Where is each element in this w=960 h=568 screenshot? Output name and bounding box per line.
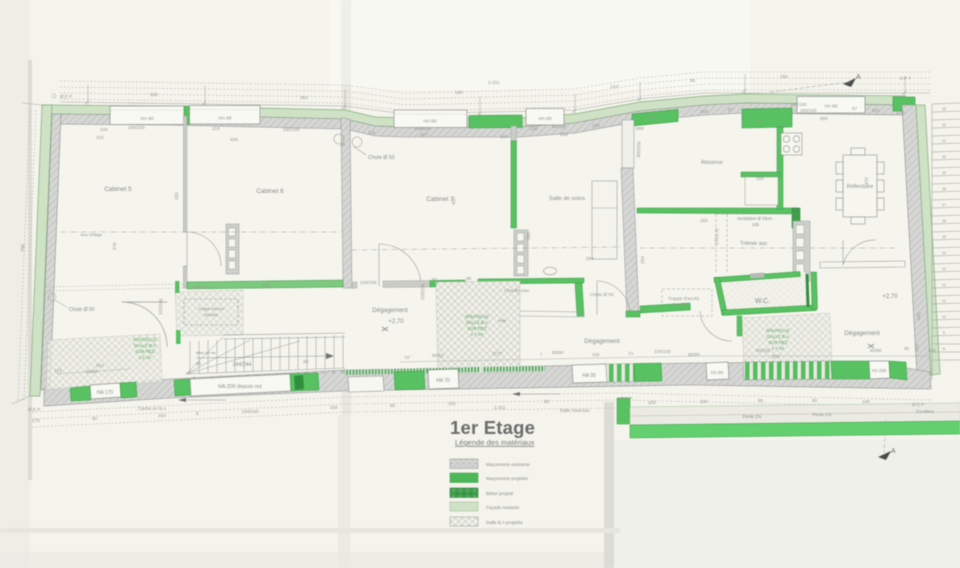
svg-text:180/100: 180/100 bbox=[414, 126, 431, 131]
svg-text:90/205: 90/205 bbox=[756, 348, 770, 353]
svg-text:DALLE B.A: DALLE B.A bbox=[767, 334, 789, 339]
svg-text:430: 430 bbox=[174, 192, 179, 200]
svg-text:390: 390 bbox=[526, 232, 531, 240]
svg-text:205: 205 bbox=[928, 348, 936, 353]
svg-text:170: 170 bbox=[32, 418, 40, 423]
svg-text:100/205: 100/205 bbox=[420, 283, 426, 300]
svg-text:HA 155: HA 155 bbox=[872, 368, 887, 373]
svg-text:22: 22 bbox=[942, 123, 946, 127]
svg-text:Salle de soins: Salle de soins bbox=[549, 196, 585, 202]
svg-text:362: 362 bbox=[300, 95, 308, 100]
svg-text:Béton projeté: Béton projeté bbox=[486, 491, 514, 496]
svg-text:190: 190 bbox=[455, 90, 463, 95]
svg-text:16: 16 bbox=[942, 219, 946, 223]
svg-text:2.331: 2.331 bbox=[494, 405, 506, 410]
svg-text:95: 95 bbox=[690, 78, 696, 83]
svg-text:100/100: 100/100 bbox=[790, 102, 807, 107]
svg-text:595: 595 bbox=[636, 126, 644, 131]
svg-text:Chute Ø 50: Chute Ø 50 bbox=[368, 155, 395, 161]
svg-text:142°: 142° bbox=[610, 84, 620, 89]
svg-text:dormies: dormies bbox=[672, 302, 689, 307]
svg-text:192: 192 bbox=[780, 74, 788, 79]
svg-text:427: 427 bbox=[420, 132, 428, 137]
svg-text:230: 230 bbox=[448, 401, 456, 406]
svg-text:Réserve: Réserve bbox=[701, 160, 723, 166]
svg-text:80/80: 80/80 bbox=[552, 350, 564, 355]
svg-text:SUR REZ: SUR REZ bbox=[135, 349, 155, 354]
svg-text:8: 8 bbox=[943, 347, 945, 351]
svg-text:248: 248 bbox=[592, 123, 600, 128]
svg-text:Trappe d'accès: Trappe d'accès bbox=[668, 296, 700, 301]
svg-text:1er Etage: 1er Etage bbox=[450, 417, 535, 438]
svg-text:14: 14 bbox=[942, 251, 946, 255]
svg-text:118: 118 bbox=[592, 352, 600, 357]
svg-text:20: 20 bbox=[942, 155, 946, 159]
svg-text:310: 310 bbox=[96, 363, 104, 368]
svg-text:570: 570 bbox=[112, 242, 117, 250]
svg-text:Ø E P: Ø E P bbox=[912, 402, 924, 407]
svg-text:175/170: 175/170 bbox=[714, 228, 720, 245]
svg-text:Légende des matériaux: Légende des matériaux bbox=[455, 438, 535, 447]
svg-text:180/100: 180/100 bbox=[128, 125, 145, 130]
svg-text:Trémie asc: Trémie asc bbox=[740, 241, 768, 247]
svg-text:244/244: 244/244 bbox=[233, 362, 252, 368]
svg-text:HA 70: HA 70 bbox=[436, 378, 450, 384]
svg-text:HA 170: HA 170 bbox=[97, 390, 114, 396]
svg-text:A: A bbox=[856, 74, 861, 81]
svg-text:SUR REZ: SUR REZ bbox=[768, 340, 788, 345]
svg-text:20: 20 bbox=[303, 359, 309, 364]
svg-text:Jeux Grillage: Jeux Grillage bbox=[80, 233, 102, 237]
svg-text:123: 123 bbox=[54, 368, 62, 373]
svg-text:180/100: 180/100 bbox=[800, 108, 817, 113]
svg-text:DALLE B.A: DALLE B.A bbox=[466, 320, 488, 325]
svg-text:288: 288 bbox=[560, 132, 568, 137]
svg-text:HA 90: HA 90 bbox=[218, 116, 231, 122]
svg-text:165: 165 bbox=[700, 218, 708, 223]
svg-text:1.35: 1.35 bbox=[896, 110, 905, 115]
svg-text:Chute Ø 50: Chute Ø 50 bbox=[69, 307, 95, 313]
svg-text:164: 164 bbox=[700, 109, 708, 114]
svg-text:26: 26 bbox=[340, 142, 346, 147]
svg-text:Cabinet 7: Cabinet 7 bbox=[426, 196, 454, 203]
svg-text:100/205: 100/205 bbox=[158, 298, 164, 315]
svg-text:57: 57 bbox=[728, 107, 734, 112]
svg-text:2.331: 2.331 bbox=[488, 80, 500, 85]
svg-text:201: 201 bbox=[872, 108, 880, 113]
svg-text:60: 60 bbox=[812, 398, 818, 403]
svg-text:HA 85: HA 85 bbox=[711, 370, 724, 375]
svg-text:118: 118 bbox=[368, 130, 376, 135]
svg-text:Réfectoire: Réfectoire bbox=[847, 184, 873, 190]
svg-text:23: 23 bbox=[942, 107, 946, 111]
svg-text:218: 218 bbox=[212, 126, 220, 131]
svg-text:NOUVELLE: NOUVELLE bbox=[465, 314, 488, 319]
svg-text:17: 17 bbox=[942, 203, 946, 207]
svg-text:300/205: 300/205 bbox=[636, 141, 642, 158]
svg-text:19: 19 bbox=[942, 171, 946, 175]
svg-text:8: 8 bbox=[196, 411, 199, 416]
svg-text:165: 165 bbox=[752, 222, 760, 227]
svg-text:100/205: 100/205 bbox=[360, 280, 377, 285]
svg-text:96: 96 bbox=[904, 346, 910, 351]
svg-text:8 P 7: 8 P 7 bbox=[900, 76, 911, 81]
svg-text:80/82: 80/82 bbox=[432, 353, 444, 358]
svg-text:294: 294 bbox=[586, 256, 594, 261]
svg-text:90/100: 90/100 bbox=[552, 124, 566, 129]
svg-text:Dégagement: Dégagement bbox=[584, 338, 620, 345]
svg-text:100/205: 100/205 bbox=[192, 285, 209, 290]
svg-text:60/80: 60/80 bbox=[870, 348, 882, 353]
svg-text:NOUVELLE: NOUVELLE bbox=[133, 337, 156, 342]
svg-text:98: 98 bbox=[466, 276, 472, 281]
svg-text:Chute Ø 50: Chute Ø 50 bbox=[590, 292, 614, 297]
svg-text:100/100: 100/100 bbox=[654, 349, 671, 354]
svg-text:Dégagement: Dégagement bbox=[372, 307, 408, 314]
svg-text:Dalle B.A projetée: Dalle B.A projetée bbox=[486, 520, 523, 525]
svg-text:12: 12 bbox=[942, 283, 946, 287]
svg-text:Dalle réservée: Dalle réservée bbox=[560, 408, 590, 413]
svg-text:330: 330 bbox=[330, 405, 338, 410]
svg-text:DALLE B.A: DALLE B.A bbox=[134, 343, 156, 348]
svg-text:150: 150 bbox=[756, 176, 764, 181]
svg-text:vide: vide bbox=[498, 318, 507, 323]
svg-text:330: 330 bbox=[700, 399, 708, 404]
svg-text:W.C.: W.C. bbox=[755, 298, 770, 305]
svg-text:Pente 2%: Pente 2% bbox=[812, 412, 831, 417]
svg-text:Cache en B.A: Cache en B.A bbox=[138, 406, 167, 411]
svg-text:9: 9 bbox=[943, 331, 945, 335]
svg-text:Escaliers: Escaliers bbox=[916, 409, 935, 414]
svg-text:140: 140 bbox=[862, 399, 870, 404]
svg-text:240/240: 240/240 bbox=[242, 409, 259, 414]
svg-text:Mtée sur rez: Mtée sur rez bbox=[196, 351, 216, 355]
svg-text:60: 60 bbox=[758, 398, 764, 403]
svg-text:118: 118 bbox=[530, 126, 538, 131]
svg-text:SUR REZ: SUR REZ bbox=[467, 326, 487, 331]
svg-text:180/100: 180/100 bbox=[283, 127, 300, 132]
svg-text:7: 7 bbox=[540, 352, 543, 357]
svg-text:Dégagement: Dégagement bbox=[844, 330, 880, 337]
svg-text:13: 13 bbox=[942, 267, 946, 271]
svg-text:± 7 m²: ± 7 m² bbox=[772, 346, 785, 351]
svg-text:100: 100 bbox=[100, 127, 108, 132]
svg-text:84: 84 bbox=[758, 118, 764, 123]
svg-text:408: 408 bbox=[230, 137, 238, 142]
svg-text:219: 219 bbox=[500, 134, 508, 139]
svg-text:17: 17 bbox=[322, 371, 326, 375]
svg-text:60: 60 bbox=[92, 416, 98, 421]
svg-text:Ø E P: Ø E P bbox=[28, 407, 40, 412]
svg-text:150: 150 bbox=[914, 344, 920, 352]
svg-text:HA 90: HA 90 bbox=[824, 104, 837, 110]
svg-text:Cabinet 5: Cabinet 5 bbox=[104, 186, 132, 193]
svg-text:121: 121 bbox=[648, 115, 656, 120]
svg-text:HA 60: HA 60 bbox=[423, 119, 436, 125]
svg-text:Maçonnerie existante: Maçonnerie existante bbox=[486, 462, 530, 467]
svg-text:430: 430 bbox=[451, 197, 456, 205]
svg-text:Ø E P: Ø E P bbox=[60, 94, 72, 99]
svg-text:57: 57 bbox=[852, 106, 858, 111]
svg-text:7A: 7A bbox=[628, 351, 635, 356]
svg-text:80: 80 bbox=[390, 403, 396, 408]
svg-text:+2,70: +2,70 bbox=[388, 319, 404, 325]
svg-text:800: 800 bbox=[820, 116, 828, 121]
svg-text:798: 798 bbox=[20, 244, 25, 252]
svg-text:Chauffe-eau: Chauffe-eau bbox=[504, 288, 530, 293]
svg-text:HA 90: HA 90 bbox=[538, 116, 551, 122]
svg-text:470: 470 bbox=[864, 177, 869, 185]
svg-text:19: 19 bbox=[340, 370, 344, 374]
svg-text:310: 310 bbox=[96, 135, 104, 140]
svg-text:+2,70: +2,70 bbox=[882, 294, 898, 300]
svg-text:Maçonnerie projetée: Maçonnerie projetée bbox=[486, 476, 528, 481]
svg-text:240: 240 bbox=[916, 312, 922, 320]
svg-text:NOUVELLE: NOUVELLE bbox=[766, 328, 789, 333]
svg-text:20: 20 bbox=[196, 361, 202, 366]
svg-text:205: 205 bbox=[772, 354, 780, 359]
svg-text:74°: 74° bbox=[404, 355, 411, 360]
svg-text:Ø E P: Ø E P bbox=[620, 396, 632, 401]
svg-text:Cabinet 6: Cabinet 6 bbox=[256, 188, 284, 195]
svg-text:± 5 m²: ± 5 m² bbox=[139, 355, 152, 360]
svg-text:Façade restante: Façade restante bbox=[486, 505, 520, 510]
svg-text:Trappe d'accès: Trappe d'accès bbox=[198, 307, 224, 311]
svg-text:15: 15 bbox=[942, 235, 946, 239]
svg-text:10: 10 bbox=[942, 315, 946, 319]
svg-text:270: 270 bbox=[262, 283, 270, 288]
svg-text:294: 294 bbox=[640, 256, 645, 264]
svg-text:HA 90: HA 90 bbox=[140, 116, 153, 122]
svg-text:dormies: dormies bbox=[204, 313, 218, 317]
svg-text:HA 200 depuis rez: HA 200 depuis rez bbox=[218, 384, 262, 390]
svg-text:A: A bbox=[891, 448, 896, 455]
svg-text:18: 18 bbox=[331, 370, 335, 374]
svg-text:92: 92 bbox=[432, 277, 438, 282]
svg-text:Ventilation Ø 33cm: Ventilation Ø 33cm bbox=[737, 216, 773, 221]
svg-text:± 7 m²: ± 7 m² bbox=[471, 332, 484, 337]
svg-text:18: 18 bbox=[942, 187, 946, 191]
svg-text:190: 190 bbox=[150, 92, 158, 97]
svg-text:100: 100 bbox=[648, 400, 656, 405]
svg-text:21: 21 bbox=[942, 139, 946, 143]
svg-text:HA 00: HA 00 bbox=[582, 373, 596, 379]
svg-text:11: 11 bbox=[942, 299, 946, 303]
svg-text:2177: 2177 bbox=[492, 351, 503, 356]
svg-text:163: 163 bbox=[158, 413, 166, 418]
svg-text:80: 80 bbox=[544, 399, 550, 404]
